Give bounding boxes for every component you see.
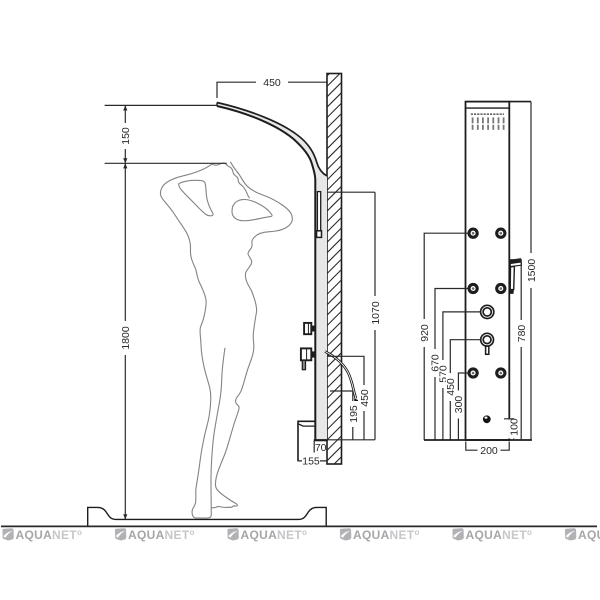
svg-text:AQUANETo: AQUANETo xyxy=(578,528,600,542)
svg-text:780: 780 xyxy=(516,325,528,343)
svg-text:195: 195 xyxy=(348,405,360,423)
svg-text:AQUANETo: AQUANETo xyxy=(16,528,83,542)
svg-text:AQUANETo: AQUANETo xyxy=(241,528,308,542)
svg-text:70: 70 xyxy=(315,442,327,454)
svg-text:1800: 1800 xyxy=(120,326,132,350)
svg-text:920: 920 xyxy=(419,324,431,342)
svg-text:AQUANETo: AQUANETo xyxy=(353,528,420,542)
svg-text:200: 200 xyxy=(480,445,498,457)
svg-text:AQUANETo: AQUANETo xyxy=(128,528,195,542)
svg-text:1070: 1070 xyxy=(370,301,382,325)
svg-text:450: 450 xyxy=(263,77,281,89)
svg-text:100: 100 xyxy=(508,418,520,436)
svg-text:155: 155 xyxy=(302,456,320,468)
svg-text:450: 450 xyxy=(359,389,371,407)
svg-text:150: 150 xyxy=(120,127,132,145)
svg-text:1500: 1500 xyxy=(526,259,538,283)
svg-text:300: 300 xyxy=(453,396,465,414)
svg-text:AQUANETo: AQUANETo xyxy=(466,528,533,542)
